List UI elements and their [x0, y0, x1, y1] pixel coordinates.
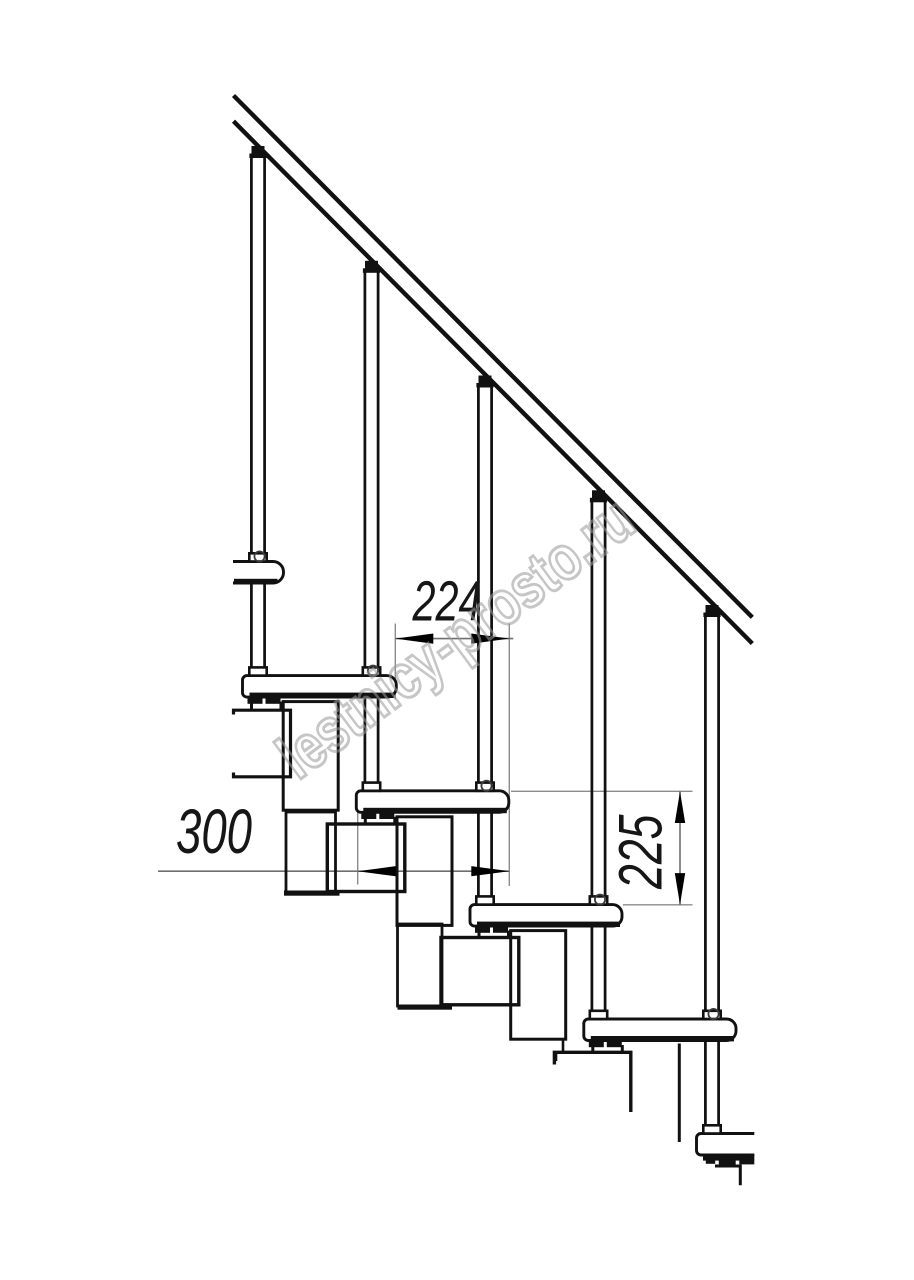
svg-text:300: 300 — [176, 797, 252, 867]
svg-text:225: 225 — [607, 814, 675, 890]
